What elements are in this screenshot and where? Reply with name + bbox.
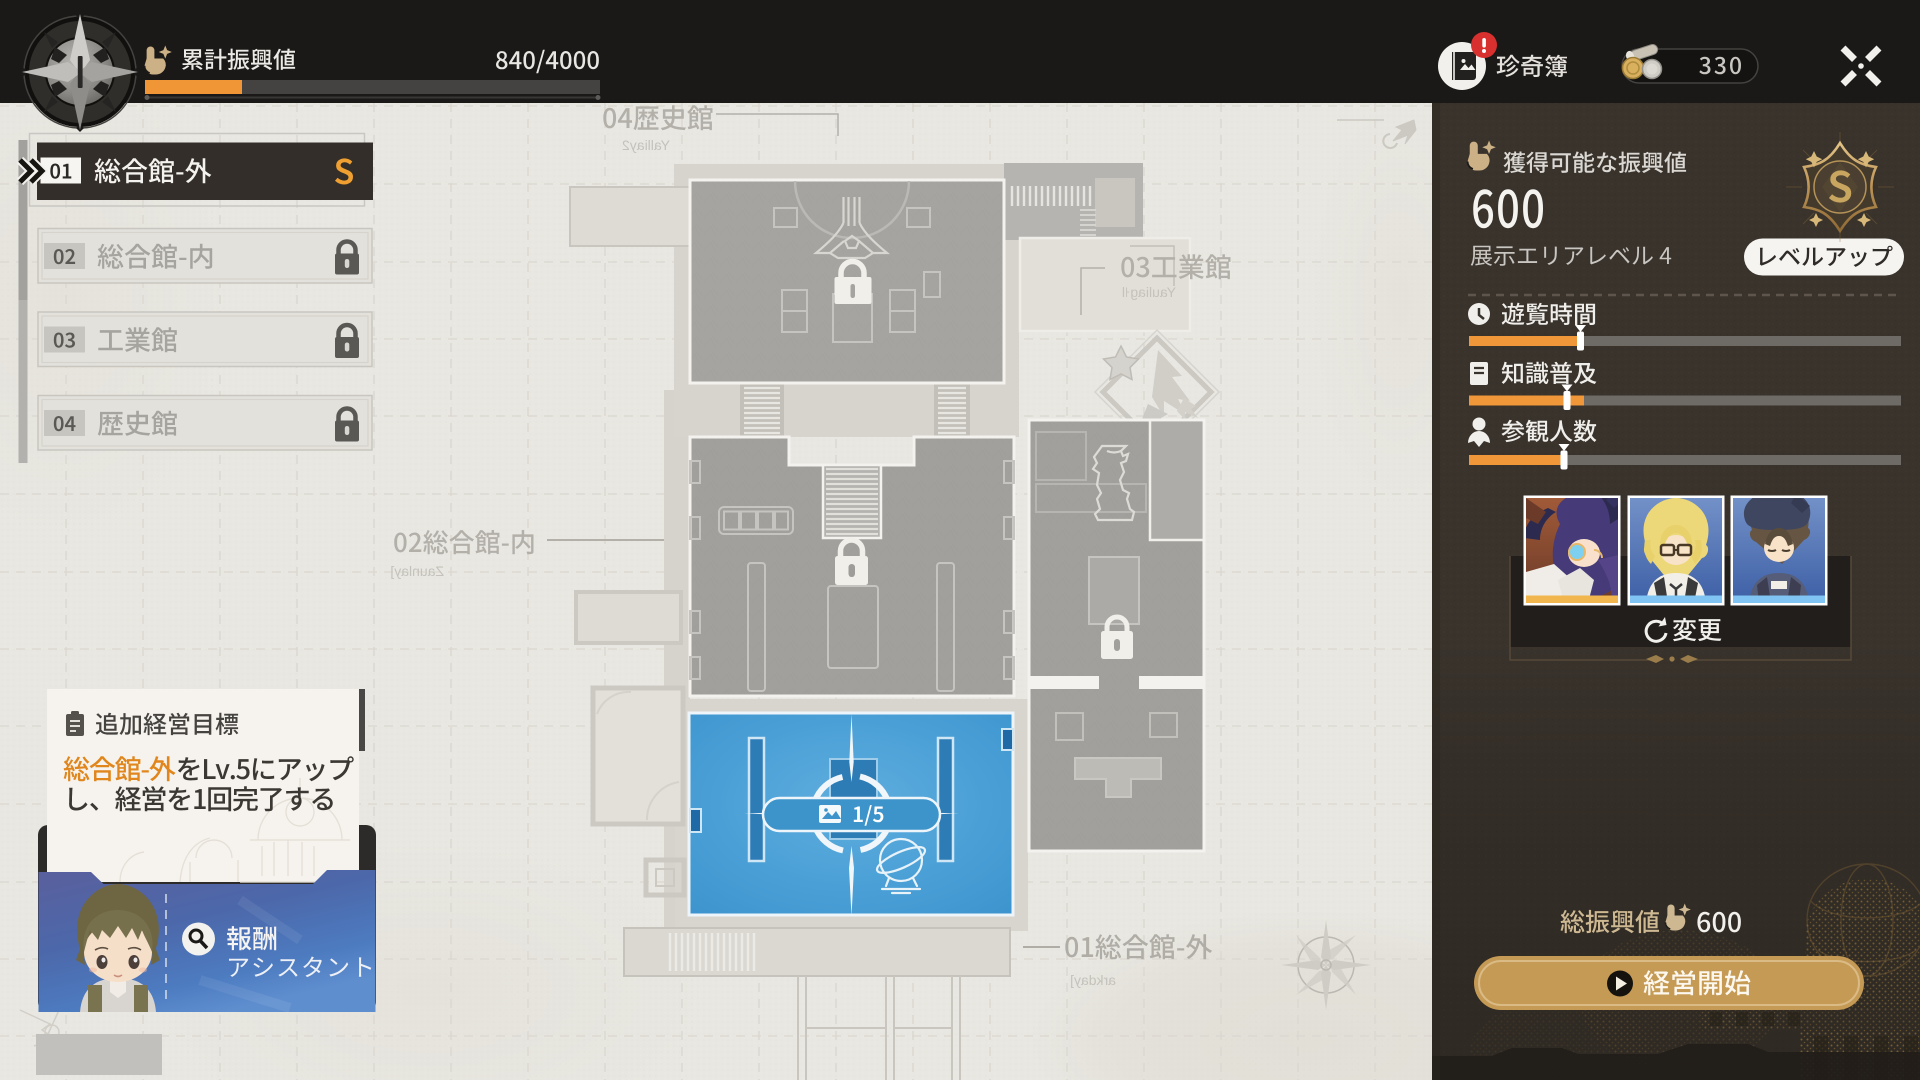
svg-text:arkday]: arkday]: [1070, 972, 1116, 988]
svg-text:Zaunlay]: Zaunlay]: [390, 563, 444, 579]
svg-text:Yalliay2: Yalliay2: [622, 137, 670, 153]
svg-text:Yauliag˧l: Yauliag˧l: [1122, 284, 1176, 300]
